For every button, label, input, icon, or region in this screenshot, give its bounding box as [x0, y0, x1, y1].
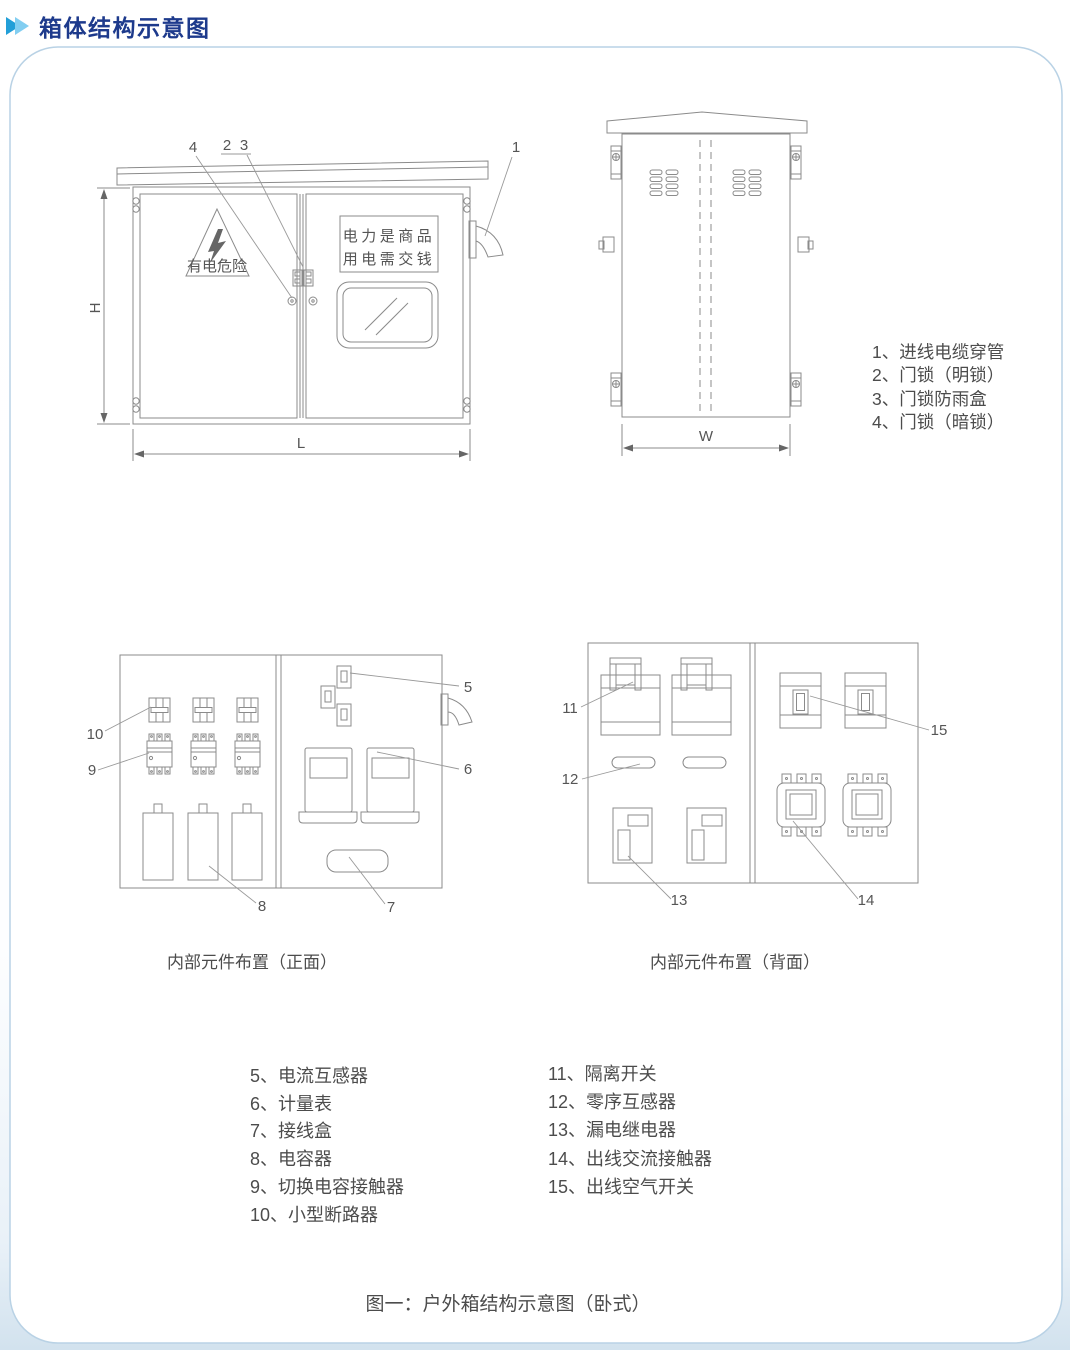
callout-13: 13 [671, 892, 688, 909]
callout-12: 12 [562, 771, 579, 788]
legend-internal-back: 11、隔离开关 12、零序互感器 13、漏电继电器 14、出线交流接触器 15、… [548, 1060, 712, 1201]
caption-internal-front: 内部元件布置（正面） [167, 948, 337, 973]
callout-10: 10 [87, 726, 104, 743]
legend-item: 12、零序互感器 [548, 1088, 712, 1116]
figure-caption: 图一：户外箱结构示意图（卧式） [365, 1289, 650, 1316]
caption-internal-back: 内部元件布置（背面） [650, 948, 820, 973]
legend-item: 8、电容器 [250, 1146, 404, 1174]
legend-item: 7、接线盒 [250, 1118, 404, 1146]
dim-label-H: H [87, 303, 104, 314]
structure-diagram: 4 2 3 1 H L 有电危险 电力是商品 用电需交钱 W [0, 0, 1070, 1350]
callout-8: 8 [258, 898, 266, 915]
dim-label-W: W [699, 428, 714, 445]
legend-internal-front: 5、电流互感器 6、计量表 7、接线盒 8、电容器 9、切换电容接触器 10、小… [250, 1063, 404, 1229]
callout-6: 6 [464, 761, 472, 778]
callout-1: 1 [512, 139, 520, 156]
legend-item: 5、电流互感器 [250, 1063, 404, 1091]
legend-item: 2、门锁（明锁） [872, 364, 1004, 387]
callout-4: 4 [189, 139, 197, 156]
legend-item: 1、进线电缆穿管 [872, 341, 1004, 364]
content-panel [10, 47, 1062, 1343]
page: { "header": { "title": "箱体结构示意图" }, "col… [0, 0, 1070, 1350]
callout-11: 11 [562, 700, 578, 717]
callout-3: 3 [240, 137, 248, 154]
callout-14: 14 [858, 892, 875, 909]
legend-item: 3、门锁防雨盒 [872, 388, 1004, 411]
legend-locks: 1、进线电缆穿管 2、门锁（明锁） 3、门锁防雨盒 4、门锁（暗锁） [872, 341, 1004, 434]
legend-item: 14、出线交流接触器 [548, 1145, 712, 1173]
callout-2: 2 [223, 137, 231, 154]
legend-item: 10、小型断路器 [250, 1202, 404, 1230]
dim-label-L: L [297, 435, 305, 452]
legend-item: 13、漏电继电器 [548, 1116, 712, 1144]
callout-7: 7 [387, 899, 395, 916]
callout-15: 15 [931, 722, 948, 739]
legend-item: 9、切换电容接触器 [250, 1174, 404, 1202]
legend-item: 6、计量表 [250, 1091, 404, 1119]
callout-9: 9 [88, 762, 96, 779]
sign-line2: 用电需交钱 [343, 250, 436, 268]
legend-item: 11、隔离开关 [548, 1060, 712, 1088]
warning-text: 有电危险 [187, 258, 247, 275]
callout-5: 5 [464, 679, 472, 696]
legend-item: 4、门锁（暗锁） [872, 411, 1004, 434]
sign-line1: 电力是商品 [343, 228, 436, 245]
legend-item: 15、出线空气开关 [548, 1173, 712, 1201]
